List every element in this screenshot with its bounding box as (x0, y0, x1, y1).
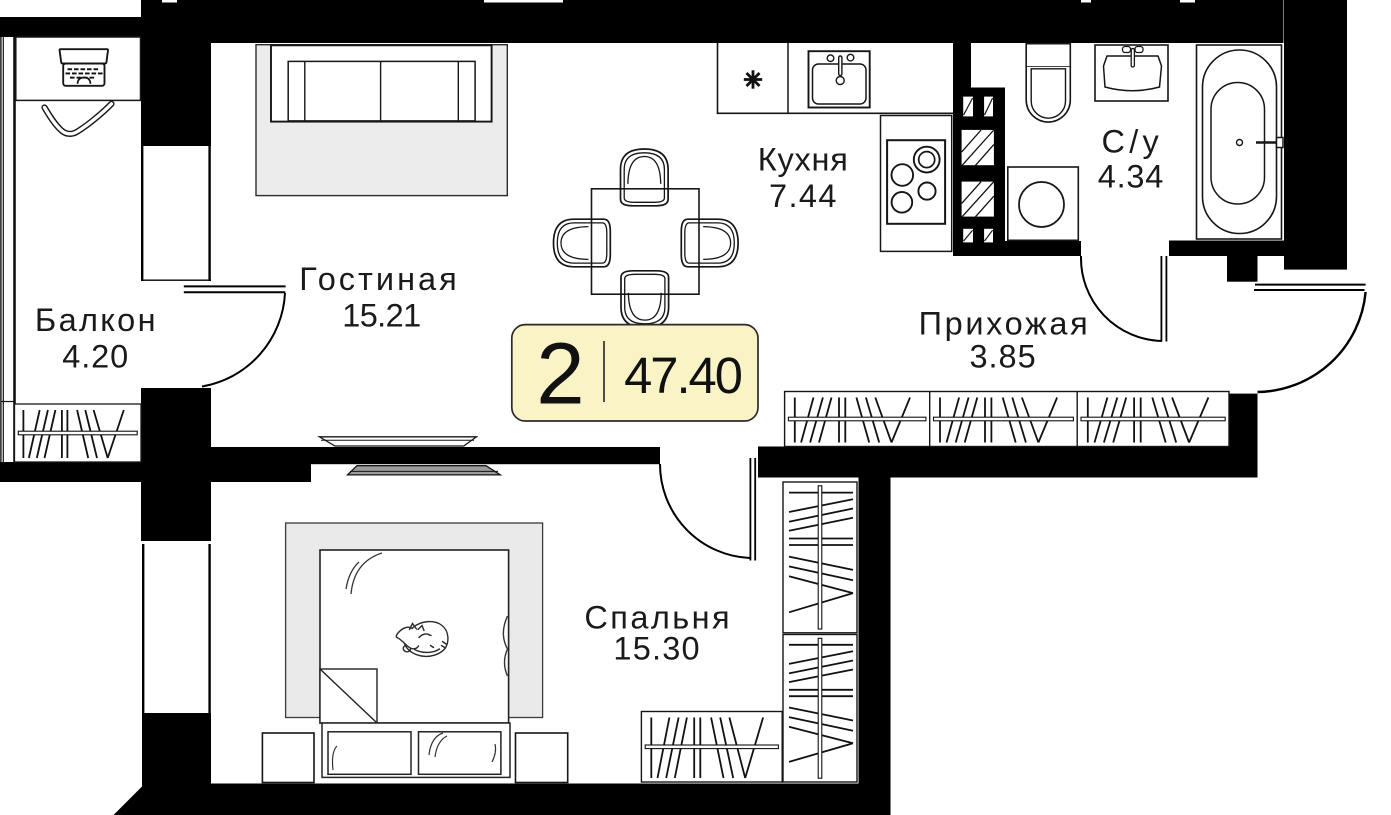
svg-text:3.85: 3.85 (970, 339, 1037, 375)
svg-text:2: 2 (536, 326, 584, 423)
svg-text:4.20: 4.20 (62, 338, 129, 374)
svg-text:4.34: 4.34 (1098, 159, 1164, 195)
svg-text:15.21: 15.21 (342, 298, 420, 334)
svg-text:15.30: 15.30 (613, 631, 700, 667)
svg-text:47.40: 47.40 (624, 347, 742, 404)
svg-text:Балкон: Балкон (35, 302, 158, 338)
svg-text:Прихожая: Прихожая (919, 306, 1091, 342)
svg-text:Кухня: Кухня (758, 141, 849, 177)
svg-text:Гостиная: Гостиная (299, 261, 459, 297)
svg-text:С/у: С/у (1102, 123, 1164, 159)
svg-text:7.44: 7.44 (769, 178, 838, 214)
